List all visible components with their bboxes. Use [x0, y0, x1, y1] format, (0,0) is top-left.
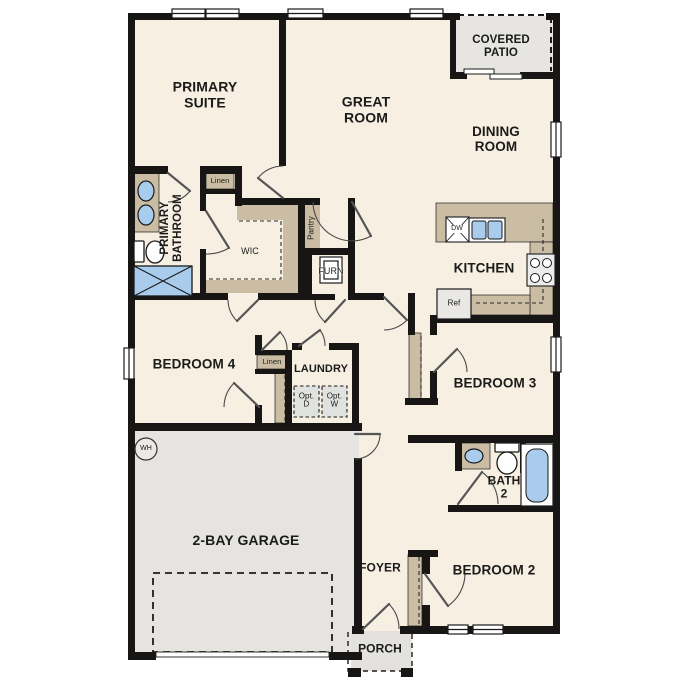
closet-label-linen-bath: Linen	[205, 177, 235, 185]
window	[551, 122, 561, 157]
bathtub-icon	[521, 444, 553, 506]
appliance-label-dishwasher: DW	[450, 225, 464, 233]
window	[551, 337, 561, 372]
room-label-wic: WIC	[230, 246, 270, 256]
appliance-label-refrigerator: Ref	[439, 300, 469, 309]
window	[473, 625, 503, 634]
toilet-icon-bath2	[495, 443, 519, 474]
room-label-bath2: BATH 2	[483, 475, 525, 502]
window	[172, 9, 205, 18]
room-label-primary-suite: PRIMARY SUITE	[155, 79, 255, 110]
wic-shelf-top	[237, 205, 298, 220]
room-label-porch: PORCH	[340, 642, 420, 655]
appliance-label-opt-washer: Opt. W	[322, 393, 348, 410]
room-label-bedroom3: BEDROOM 3	[415, 375, 575, 390]
room-label-primary-bathroom: PRIMARY BATHROOM	[159, 190, 185, 266]
room-label-dining-room: DINING ROOM	[456, 124, 536, 154]
room-label-kitchen: KITCHEN	[424, 260, 544, 275]
garage-door-panel	[156, 652, 329, 657]
room-label-foyer: FOYER	[340, 561, 420, 574]
room-label-bedroom4: BEDROOM 4	[114, 356, 274, 371]
appliance-label-water-heater: WH	[134, 445, 158, 453]
room-label-garage: 2-BAY GARAGE	[191, 533, 301, 549]
room-label-covered-patio: COVERED PATIO	[455, 34, 547, 60]
room-label-laundry: LAUNDRY	[281, 363, 361, 375]
floor-plan: PRIMARY SUITE GREAT ROOM COVERED PATIO D…	[0, 0, 687, 687]
shower-icon	[134, 266, 192, 296]
kitchen-sink-icon	[469, 218, 505, 242]
window	[410, 9, 443, 18]
appliance-label-furnace: FURN	[311, 266, 351, 276]
room-label-bedroom2: BEDROOM 2	[414, 562, 574, 577]
wic-shelf-bottom	[206, 280, 298, 293]
window	[448, 625, 468, 634]
kitchen-counter-bottom	[466, 295, 530, 315]
window	[206, 9, 239, 18]
bedroom3-closet	[409, 333, 421, 403]
room-label-great-room: GREAT ROOM	[326, 94, 406, 125]
closet-label-pantry: Pantry	[308, 211, 317, 245]
bath2-sink-icon	[465, 449, 483, 463]
window	[288, 9, 323, 18]
appliance-label-opt-dryer: Opt. D	[294, 393, 320, 410]
